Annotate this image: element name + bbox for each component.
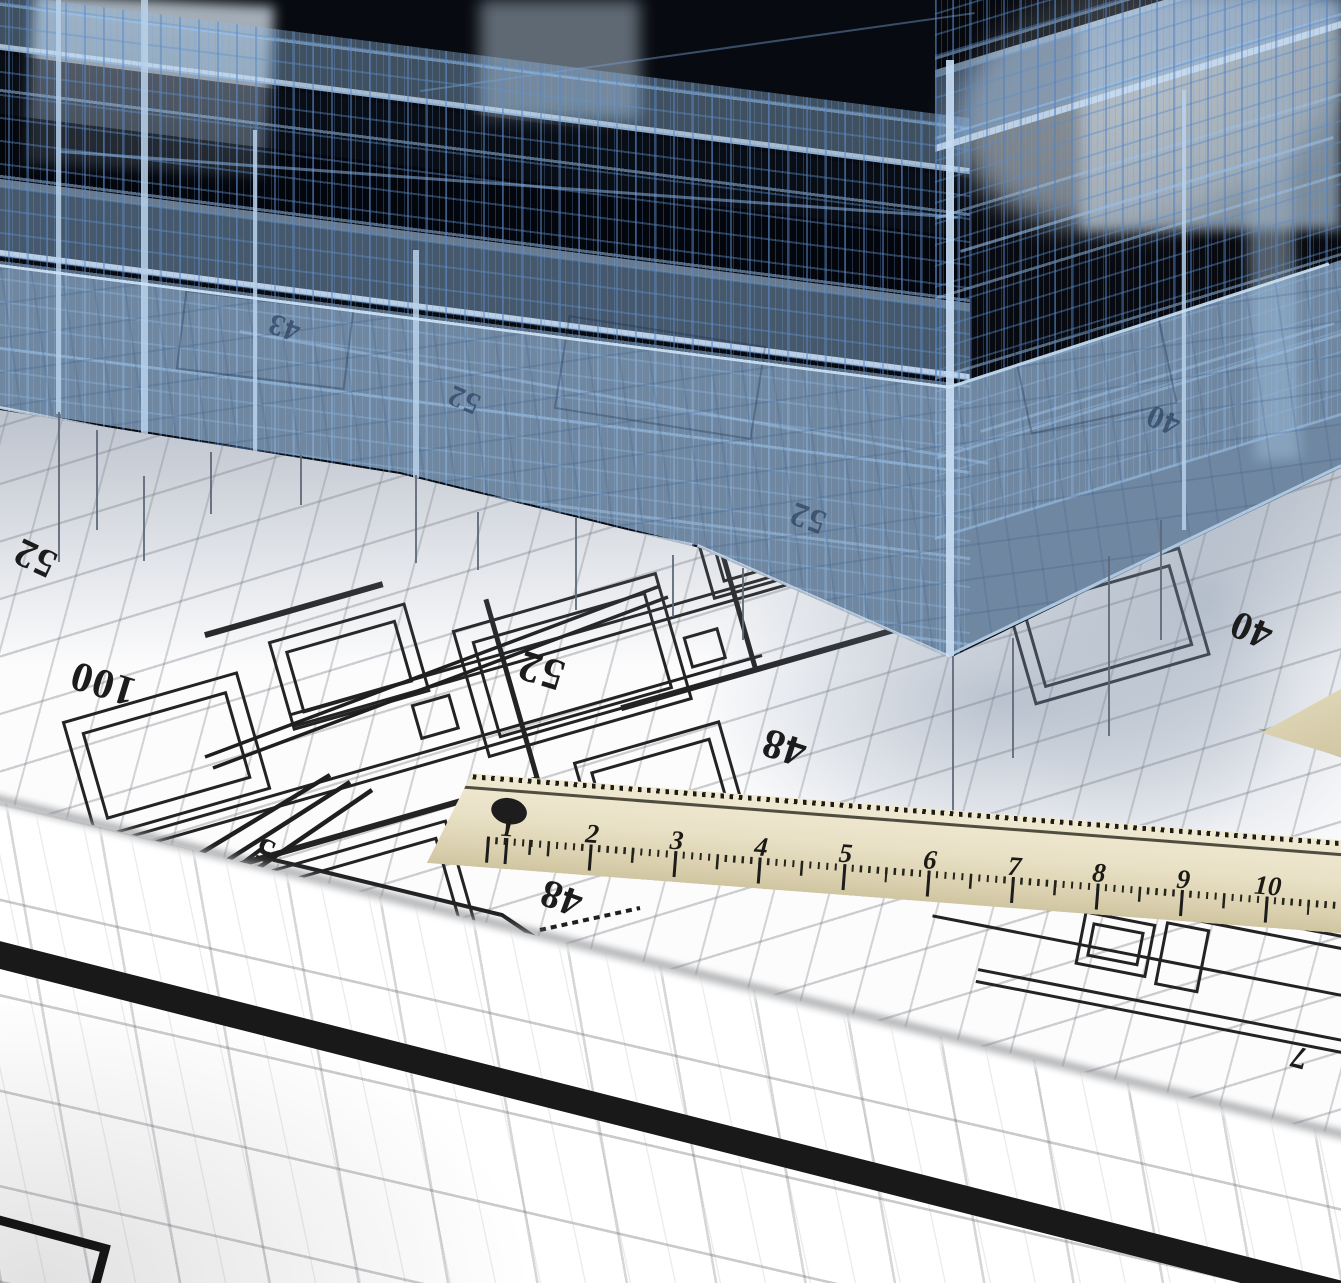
frame-post [56,0,61,414]
ruler-number: 1 [500,812,516,844]
ruler-number: 8 [1091,857,1107,889]
frame-post [413,250,419,478]
ruler-number: 4 [753,831,769,863]
ruler-number: 6 [922,844,938,876]
ruler-number: 5 [838,838,854,870]
blueprint-photo: 52 100 52 48 40 5 48 7 [0,0,1341,1283]
ruler-number: 3 [669,825,685,857]
corner-post [946,60,954,660]
ruler-number: 9 [1175,864,1191,896]
ruler-number: 7 [1007,851,1023,883]
ruler-number: 10 [1253,870,1282,903]
frame-post [141,0,148,478]
ruler-number: 2 [584,818,600,850]
frame-post [253,130,257,452]
